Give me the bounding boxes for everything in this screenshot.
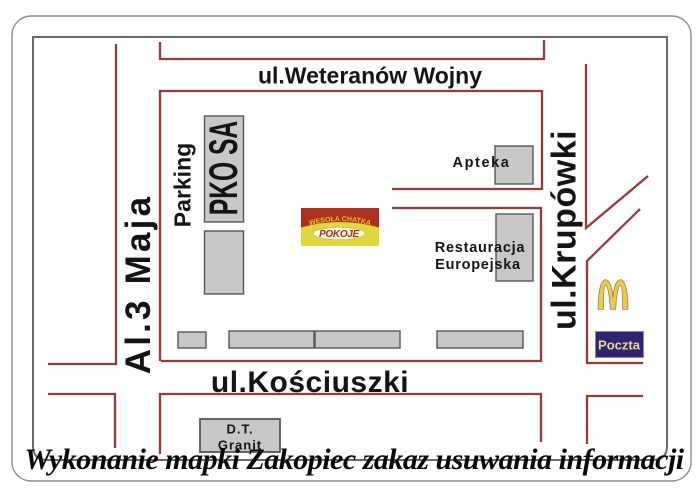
- svg-text:POKOJE: POKOJE: [319, 229, 360, 240]
